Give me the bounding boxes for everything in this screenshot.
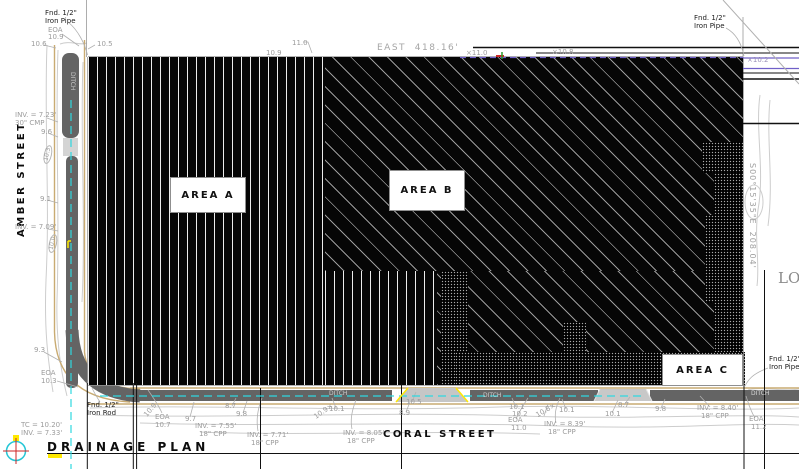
area-b-hatch: [325, 57, 743, 271]
annotation--11-0: ×11.0: [466, 50, 487, 57]
annotation-11-0: 11.0: [292, 40, 308, 47]
drawing-title: DRAINAGE PLAN: [47, 440, 209, 454]
annotation-9-8: 9.8: [655, 406, 666, 413]
title-highlight: [48, 454, 62, 458]
annotation-18-cpp: 18" CPP: [251, 440, 279, 447]
annotation-iron-pipe: Iron Pipe: [45, 18, 76, 25]
coral-street-label: CORAL STREET: [383, 429, 496, 440]
annotation-10-5: 10.5: [97, 41, 113, 48]
annotation-9-6: 9.6: [41, 129, 52, 136]
area-b-label-box: AREA B: [389, 170, 465, 211]
annotation-10-0: 10.0: [47, 233, 59, 254]
area-c-label: AREA C: [676, 365, 729, 376]
annotation-10-1: 10.1: [329, 406, 345, 413]
annotation-ditch: DITCH: [751, 391, 769, 397]
annotation-10-9: 10.9: [266, 50, 282, 57]
annotation-inv-7-33-: INV. = 7.33': [21, 430, 62, 437]
annotation-11-0: 11.0: [511, 425, 527, 432]
annotation-iron-pipe: Iron Pipe: [769, 364, 799, 371]
annotation-iron-rod: Iron Rod: [87, 410, 116, 417]
gravel-stipple-east-bump: [705, 215, 743, 303]
annotation-10-6: 10.6: [31, 41, 47, 48]
annotation-18-cpp: 18" CPP: [347, 438, 375, 445]
annotation-8-7: 8.7: [618, 402, 629, 409]
east-boundary-bearing: S00°15'35"E 208.04': [748, 163, 757, 269]
annotation-9-3: 9.3: [34, 347, 45, 354]
area-a-label: AREA A: [181, 190, 234, 201]
gravel-stipple-east-top: [702, 142, 743, 173]
annotation-30-cmp: 30" CMP: [15, 120, 45, 127]
annotation-10-3: 10.3: [41, 378, 57, 385]
annotation-10-1: 10.1: [559, 407, 575, 414]
annotation-ditch: DITCH: [329, 391, 347, 397]
annotation-10-9: 10.9: [48, 34, 64, 41]
annotation-9-8: 9.8: [236, 411, 247, 418]
annotation-10-5: 10.5: [406, 399, 422, 406]
annotation-iron-pipe: Iron Pipe: [694, 23, 725, 30]
annotation-10-7: 10.7: [155, 422, 171, 429]
area-b-label: AREA B: [400, 185, 453, 196]
annotation-8-9: 8.9: [399, 410, 410, 417]
north-compass: [3, 435, 29, 464]
annotation-18-cpp: 18" CPP: [701, 413, 729, 420]
annotation--10-8: ×10.8: [552, 49, 573, 56]
annotation-10-3: 10.3: [42, 144, 54, 165]
annotation-11-2: 11.2: [751, 424, 767, 431]
north-boundary-bearing: EAST 418.16': [377, 43, 459, 53]
area-a-hatch-extension: [325, 271, 437, 385]
area-a-label-box: AREA A: [170, 177, 246, 213]
annotation-ditch: DITCH: [69, 72, 75, 90]
annotation-10-8-: 10.8×: [535, 402, 557, 419]
annotation-8-7: 8.7: [225, 403, 236, 410]
drainage-plan-drawing: AREA A AREA B AREA C DRAINAGE PLAN CORAL…: [0, 0, 799, 469]
annotation--10-2: ×10.2: [747, 57, 768, 64]
amber-street-label: AMBER STREET: [16, 121, 27, 237]
annotation-10-1: 10.1: [605, 411, 621, 418]
annotation-ditch: DITCH: [483, 393, 501, 399]
annotation-lo: LO: [778, 271, 799, 287]
annotation-inv-7-09-: INV. = 7.09': [15, 224, 56, 231]
annotation-18-cpp: 18" CPP: [199, 431, 227, 438]
annotation-9-1: 9.1: [40, 196, 51, 203]
area-c-label-box: AREA C: [662, 354, 743, 386]
annotation-18-cpp: 18" CPP: [548, 429, 576, 436]
area-a-hatch: [88, 57, 325, 385]
gravel-stipple-knob: [563, 322, 586, 354]
